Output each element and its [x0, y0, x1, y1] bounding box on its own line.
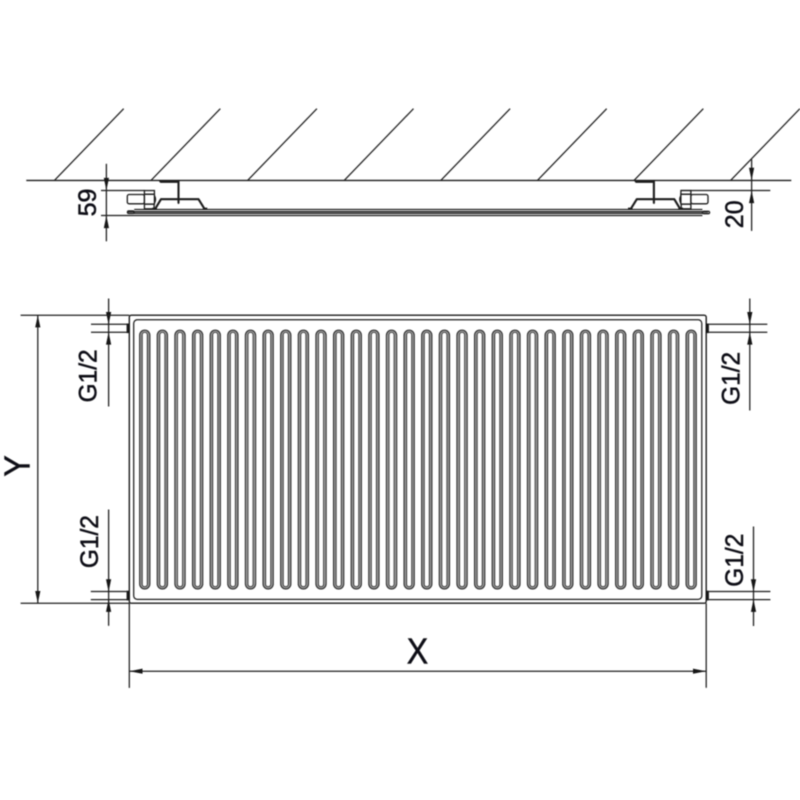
svg-text:G1/2: G1/2: [721, 534, 749, 587]
svg-text:G1/2: G1/2: [718, 352, 746, 405]
svg-text:20: 20: [721, 200, 749, 228]
svg-text:X: X: [407, 632, 428, 672]
svg-text:Y: Y: [0, 455, 38, 476]
svg-text:59: 59: [74, 189, 102, 217]
svg-text:G1/2: G1/2: [74, 349, 102, 402]
svg-text:G1/2: G1/2: [76, 515, 104, 568]
